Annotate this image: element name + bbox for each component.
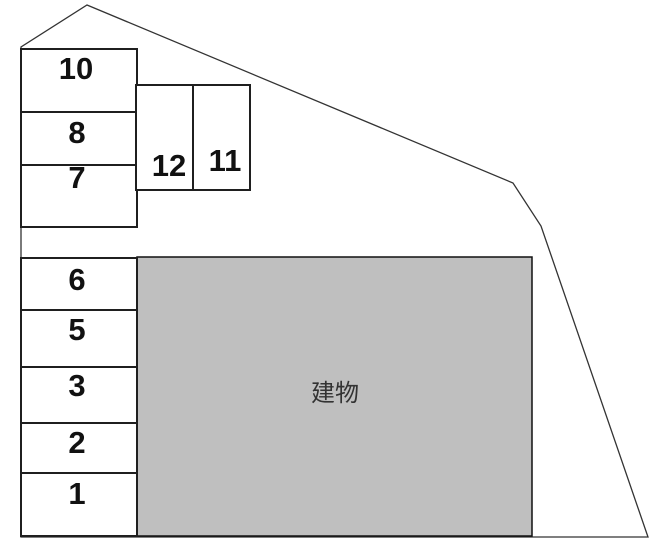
site-plan-svg: 建物 10 8 7 12 11 6 5 3 2 1 [0, 0, 660, 560]
parking-space-6-label: 6 [68, 262, 85, 297]
parking-space-11-label: 11 [209, 143, 242, 178]
building-label: 建物 [311, 380, 359, 407]
parking-space-1-label: 1 [68, 476, 85, 511]
parking-space-5-label: 5 [68, 312, 85, 347]
parking-space-8-label: 8 [68, 115, 85, 150]
parking-space-10-label: 10 [59, 51, 93, 86]
parking-space-3-label: 3 [68, 368, 85, 403]
parking-space-12-label: 12 [152, 148, 186, 183]
parking-space-2-label: 2 [68, 425, 85, 460]
parking-space-7-label: 7 [68, 160, 85, 195]
site-plan-diagram: 建物 10 8 7 12 11 6 5 3 2 1 [0, 0, 660, 560]
